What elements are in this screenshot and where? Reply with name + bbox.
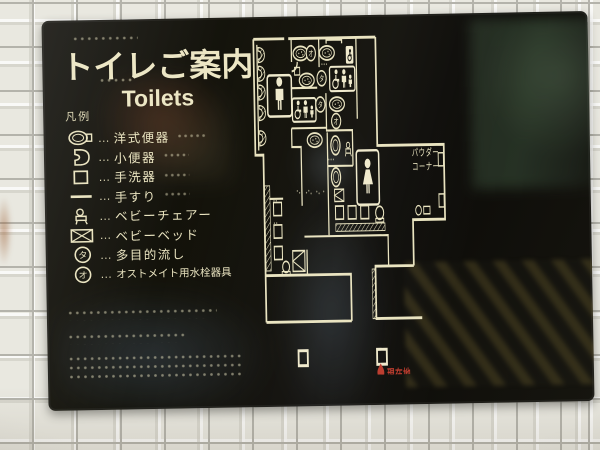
svg-text:オ: オ (79, 270, 88, 280)
baby-chair-icon (67, 207, 97, 226)
western-toilet (331, 136, 341, 155)
legend-separator: … (98, 170, 110, 184)
powder-counter (439, 194, 444, 207)
western-toilet (307, 133, 322, 147)
current-location-label: 現在地 (387, 366, 411, 382)
accessible-toilet-sign (329, 66, 355, 91)
family-toilet-sign (292, 98, 316, 122)
braille-row (98, 75, 132, 85)
urinal-fixtures (258, 48, 266, 146)
legend: 凡例 … 洋式便器 … 小便器 … 手洗器 (65, 105, 268, 285)
pillar (299, 351, 308, 366)
powder-corner-label: パウダー (412, 146, 440, 159)
powder-corner-label: コーナー (412, 160, 440, 173)
map-walls (253, 36, 447, 323)
svg-text:タ: タ (318, 99, 323, 110)
womens-room-sign (356, 150, 379, 205)
braille-row (164, 191, 190, 199)
toilet-floor-plan-map: オ タ タ オ (250, 21, 595, 401)
multipurpose-sink-icon: タ (68, 245, 98, 265)
legend-separator: … (100, 248, 112, 262)
hand-wash-basin (273, 202, 281, 215)
powder-corner: パウダー コーナー (412, 146, 445, 215)
legend-label: 手洗器 (114, 166, 156, 186)
hand-wash-basin (274, 225, 282, 238)
braille-row (163, 171, 189, 179)
legend-separator: … (98, 150, 110, 164)
photo-of-toilet-guide-sign: { "sign": { "title": "トイレご案内", "subtitle… (0, 0, 600, 450)
svg-text:タ: タ (78, 250, 87, 260)
legend-separator: … (99, 189, 111, 203)
legend-heading: 凡例 (65, 105, 265, 125)
western-toilet (331, 168, 341, 187)
braille-row (177, 132, 207, 141)
pillar (377, 349, 387, 364)
western-toilet-icon (65, 129, 95, 147)
western-toilet (329, 97, 344, 111)
braille-row (67, 306, 217, 321)
legend-separator: … (97, 131, 109, 145)
wheelchair-wall-sign (346, 46, 354, 64)
western-toilet (376, 206, 384, 222)
ostomate-symbol: オ (331, 113, 340, 128)
toilet-guide-sign-panel: トイレご案内 Toilets 凡例 … 洋式便器 … 小便器 … 手 (41, 11, 594, 411)
braille-row (68, 351, 243, 380)
hand-wash-basin (361, 206, 369, 219)
legend-label: ベビーベッド (115, 224, 199, 245)
ostomate-fixture-icon: オ (68, 265, 98, 285)
legend-label: 多目的流し (116, 244, 186, 264)
legend-separator: … (99, 209, 111, 223)
svg-text:タ: タ (319, 73, 324, 84)
handrail-icon (67, 191, 97, 202)
legend-label: 洋式便器 (113, 127, 169, 147)
braille-row (67, 330, 187, 344)
hand-wash-basin (274, 246, 282, 259)
baby-bed (335, 189, 344, 201)
braille-row (163, 152, 189, 160)
legend-label: 手すり (115, 186, 157, 206)
svg-text:オ: オ (333, 117, 338, 127)
powder-stool (416, 205, 422, 214)
hand-wash-basin (335, 206, 343, 219)
western-toilet (282, 261, 290, 275)
legend-item-ostomate-fixture: オ … オストメイト用水栓器具 (68, 261, 268, 284)
western-toilet (299, 73, 314, 87)
multipurpose-symbol: タ (317, 71, 326, 86)
handrail-hatch (372, 269, 376, 319)
western-toilet (319, 46, 334, 60)
legend-separator: … (100, 267, 112, 281)
handrail-hatch (336, 223, 385, 231)
urinal-icon (66, 148, 96, 167)
reflection-dark-object (54, 285, 266, 411)
legend-label: ベビーチェアー (115, 204, 213, 225)
baby-chair (345, 142, 351, 156)
wall-stain (0, 196, 12, 266)
baby-bed-icon (67, 227, 97, 245)
legend-label: オストメイト用水栓器具 (116, 264, 232, 281)
hand-wash-basin-icon (66, 169, 96, 186)
legend-separator: … (99, 228, 111, 242)
legend-label: 小便器 (114, 147, 156, 167)
powder-stool (424, 206, 430, 214)
ostomate-symbol: オ (306, 46, 315, 61)
hand-wash-basin (348, 206, 356, 219)
mens-room-sign (267, 75, 292, 117)
svg-text:オ: オ (308, 49, 313, 59)
multipurpose-symbol: タ (316, 97, 325, 112)
baby-bed (293, 251, 305, 272)
braille-row (72, 33, 138, 44)
sign-title: トイレご案内 (54, 39, 261, 89)
